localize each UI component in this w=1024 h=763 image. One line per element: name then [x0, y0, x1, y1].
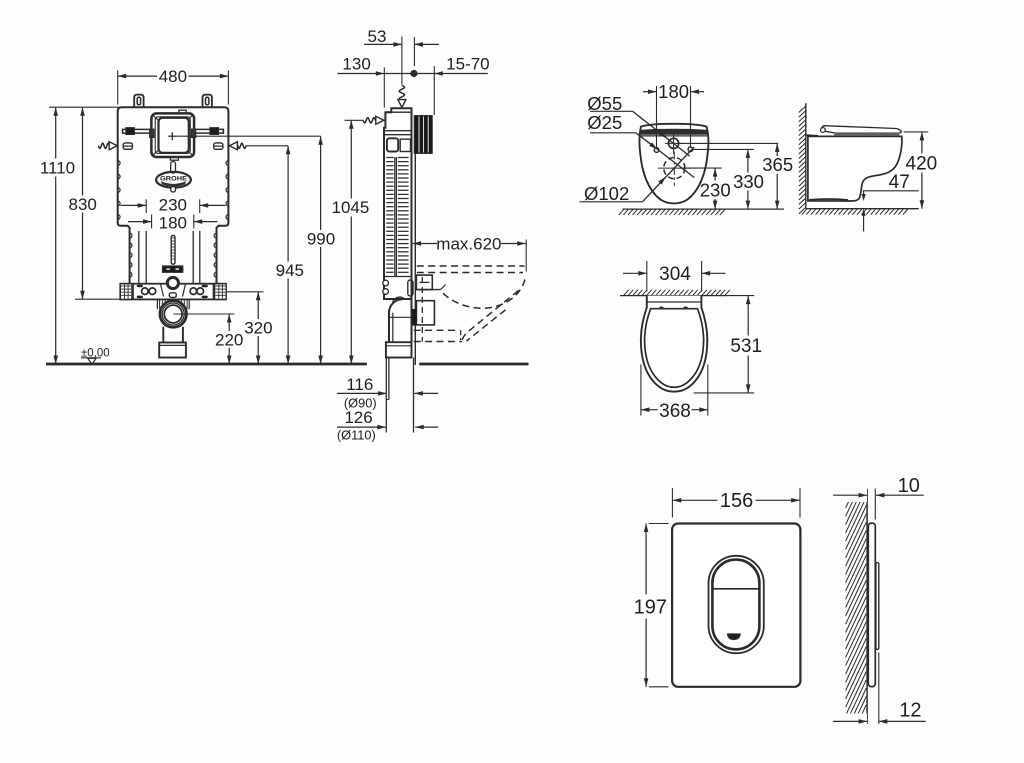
svg-text:10: 10 — [898, 475, 920, 497]
svg-text:368: 368 — [659, 401, 691, 422]
svg-text:Ø25: Ø25 — [587, 112, 622, 133]
svg-text:480: 480 — [159, 67, 187, 86]
svg-text:230: 230 — [159, 195, 187, 214]
svg-text:945: 945 — [276, 261, 304, 280]
svg-text:365: 365 — [762, 154, 793, 175]
svg-text:53: 53 — [368, 27, 387, 46]
svg-text:330: 330 — [733, 171, 764, 192]
svg-text:180: 180 — [658, 81, 689, 102]
svg-text:197: 197 — [634, 597, 667, 619]
svg-text:230: 230 — [700, 180, 731, 201]
svg-text:15-70: 15-70 — [446, 54, 489, 73]
svg-text:420: 420 — [906, 154, 938, 175]
svg-text:max.620: max.620 — [436, 235, 501, 254]
svg-text:1045: 1045 — [331, 198, 369, 217]
svg-text:180: 180 — [159, 213, 187, 232]
svg-text:830: 830 — [69, 195, 97, 214]
svg-text:(Ø110): (Ø110) — [337, 428, 376, 443]
svg-text:116: 116 — [346, 375, 373, 394]
svg-text:GROHE: GROHE — [160, 176, 187, 183]
svg-text:12: 12 — [899, 700, 921, 722]
svg-text:531: 531 — [730, 336, 762, 357]
svg-text:990: 990 — [307, 230, 335, 249]
svg-text:130: 130 — [342, 54, 370, 73]
svg-text:220: 220 — [215, 331, 243, 350]
svg-text:304: 304 — [659, 264, 691, 285]
svg-text:156: 156 — [720, 490, 753, 512]
svg-text:1110: 1110 — [40, 158, 75, 177]
svg-text:Ø102: Ø102 — [584, 183, 629, 204]
svg-text:126: 126 — [344, 408, 372, 427]
svg-text:320: 320 — [244, 318, 272, 337]
svg-text:47: 47 — [889, 172, 910, 193]
